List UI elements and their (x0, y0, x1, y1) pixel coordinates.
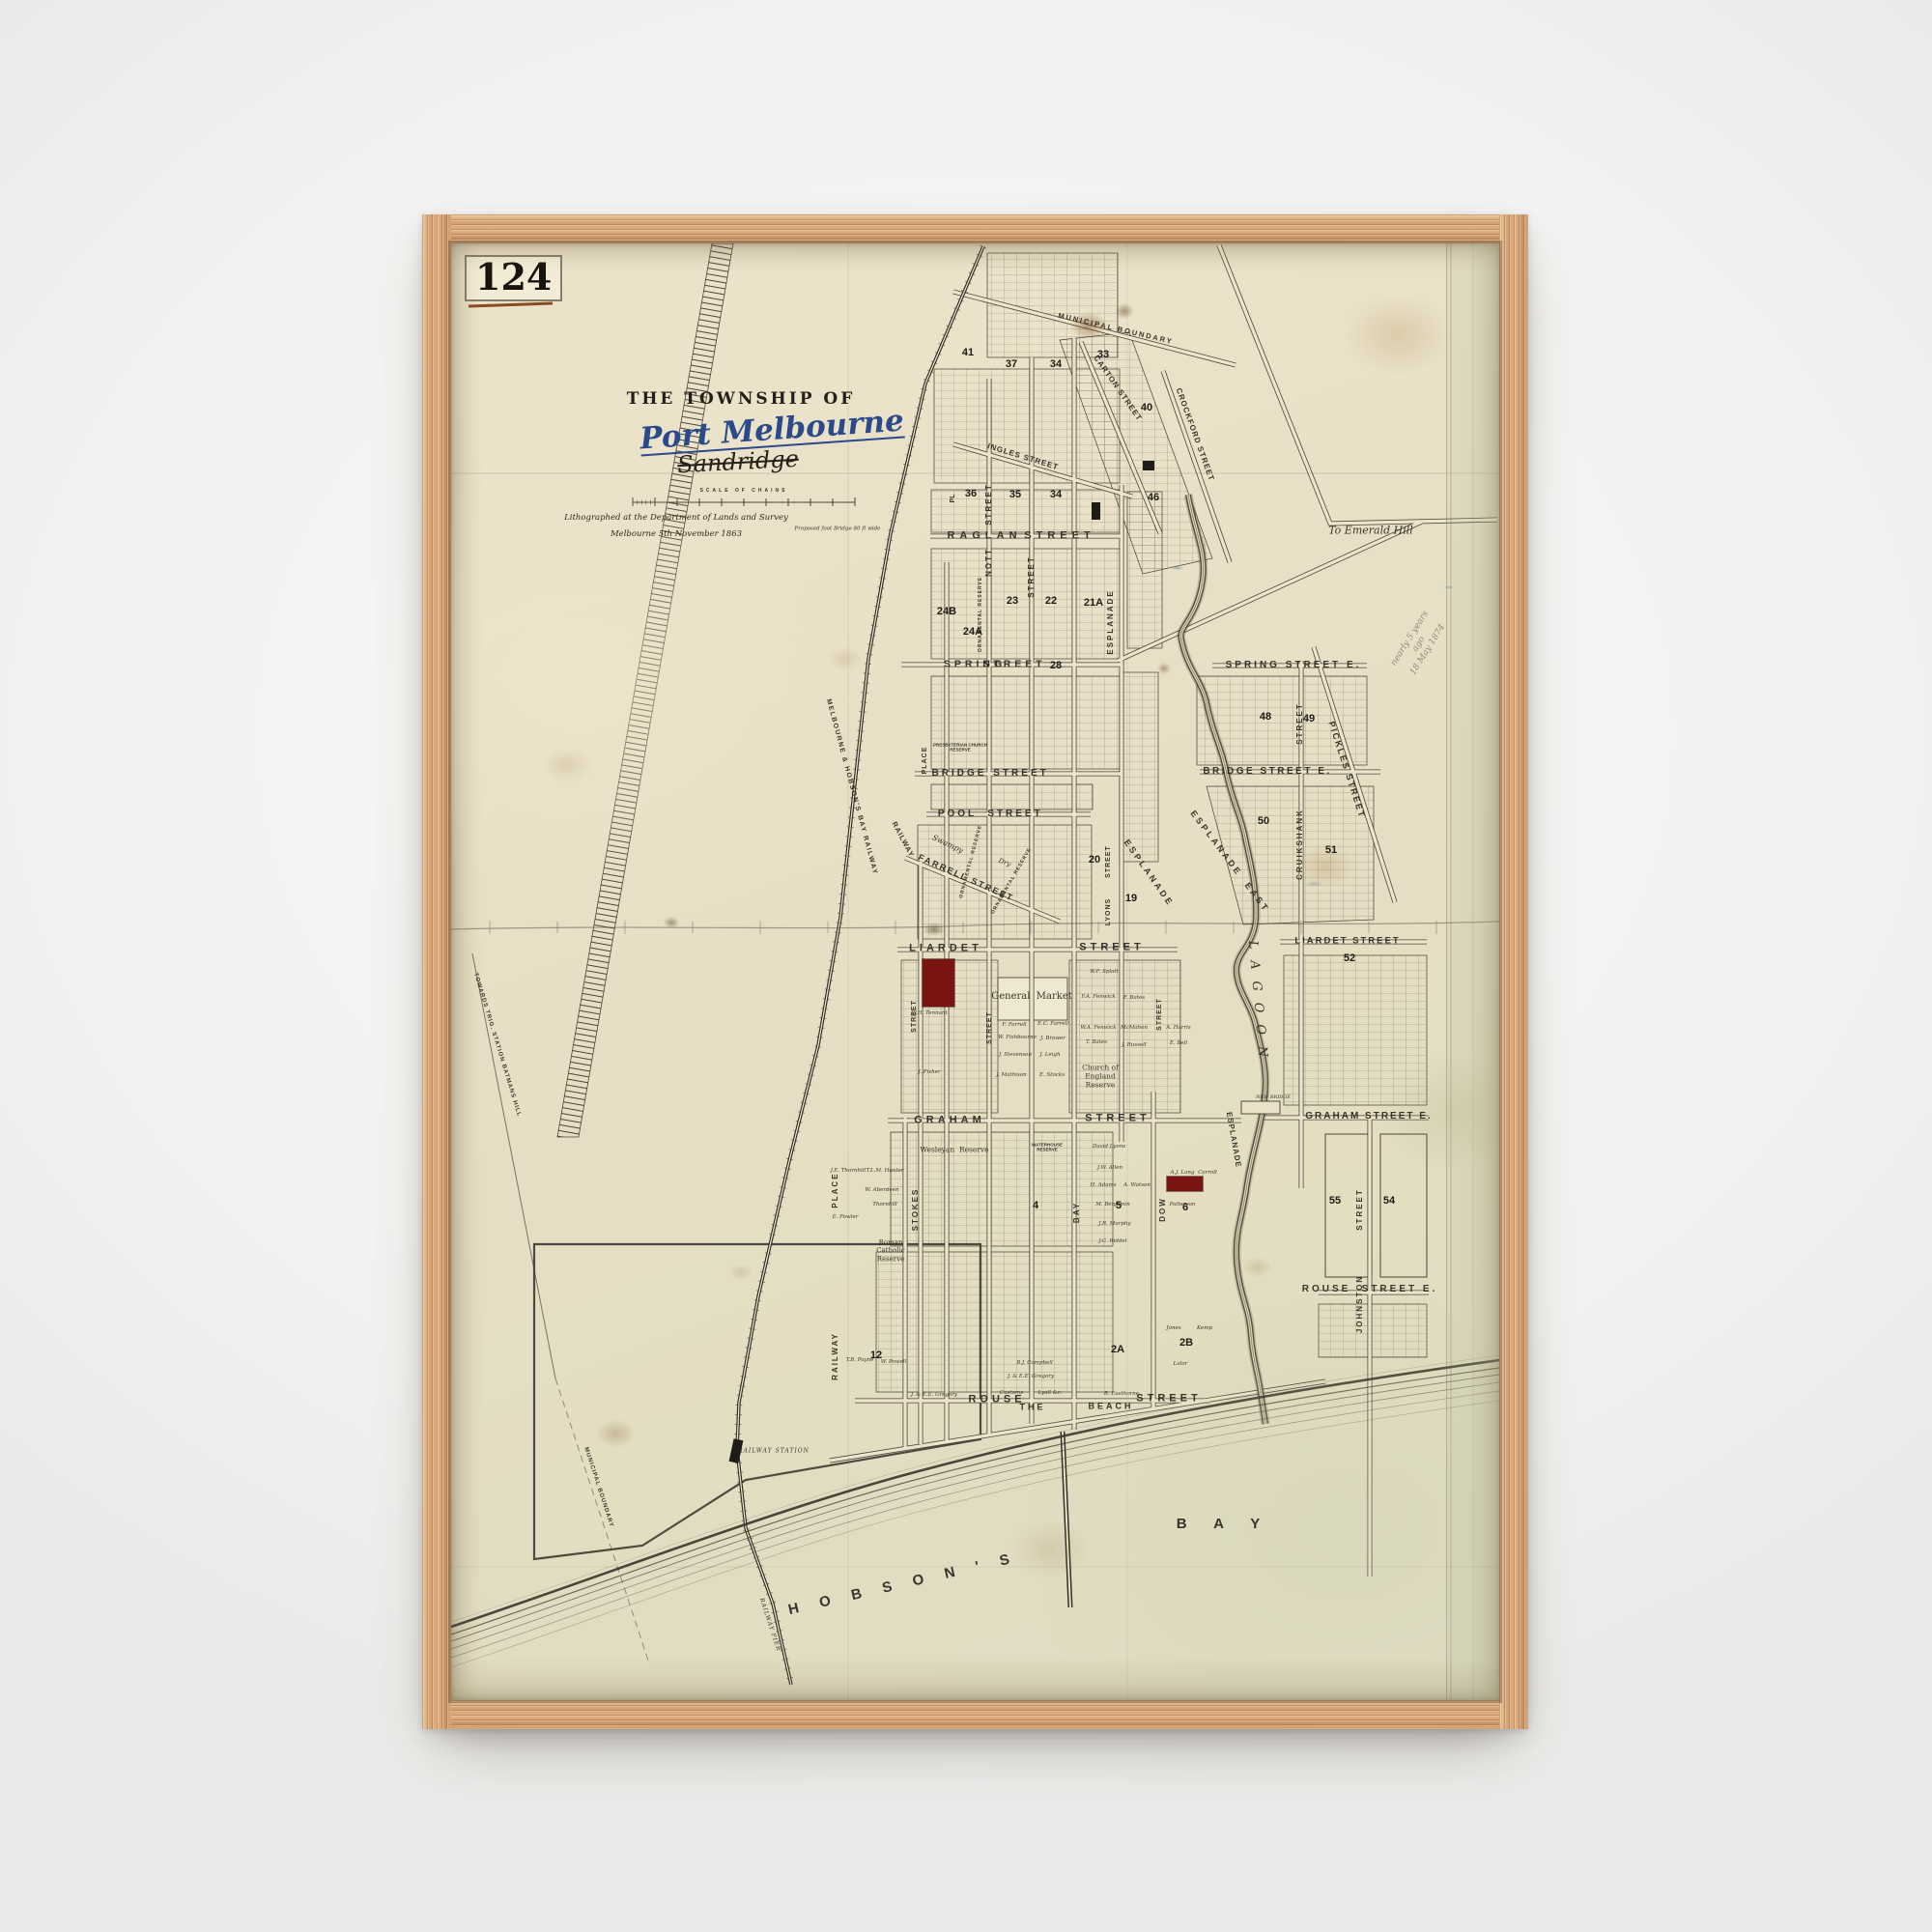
map-label-pl: PL (950, 495, 957, 503)
map-label-street: STREET (986, 1011, 994, 1044)
block-number-33: 33 (1097, 349, 1109, 360)
map-label-nearly-5-years-ago-18-may-1874: nearly 5 years ago 18 May 1874 (1384, 602, 1453, 687)
lot-owner-e-stocks: E. Stocks (1039, 1072, 1065, 1078)
lot-owner-a-j-lang: A.J. Lang (1171, 1170, 1195, 1176)
lot-owner-david-lyons: David Lyons (1093, 1144, 1125, 1150)
map-label-street: STREET (1024, 529, 1094, 542)
map-label-street: STREET (1079, 941, 1144, 953)
lot-owner-j-e-e-gregory: J. & E.E. Gregory (911, 1392, 957, 1398)
map-label-graham-street-e: GRAHAM STREET E. (1305, 1111, 1432, 1122)
lot-owner-a-harris: A. Harris (1166, 1025, 1190, 1031)
map-sheet: RAGLANSTREETSPRINGSTREETSPRING STREET E.… (451, 243, 1499, 1700)
map-label-new-bridge: NEW BRIDGE (1256, 1094, 1291, 1100)
imprint-line-1: Lithographed at the Department of Lands … (564, 513, 788, 523)
map-label-lagoon: LAGOON (1244, 940, 1270, 1069)
lot-owner-thornhill: Thornhill (872, 1202, 897, 1207)
lot-owner-kemp: Kemp (1197, 1325, 1212, 1331)
map-label-general-market: General Market (991, 991, 1072, 1003)
lot-owner-j-stevenson: J. Stevenson (999, 1052, 1032, 1058)
lot-owner-patterson: Patterson (1170, 1202, 1196, 1207)
block-number-28: 28 (1050, 660, 1062, 671)
map-label-esplanade: ESPLANADE (1224, 1111, 1243, 1168)
block-number-34: 34 (1050, 358, 1062, 370)
map-label-street: STREET (987, 809, 1042, 820)
block-number-4: 4 (1033, 1200, 1038, 1211)
block-number-20: 20 (1089, 854, 1100, 866)
block-number-50: 50 (1258, 815, 1269, 827)
map-label-graham: GRAHAM (914, 1114, 985, 1126)
lot-owner-j-brower: J. Brower (1040, 1036, 1065, 1041)
map-label-street: STREET (1156, 998, 1164, 1031)
map-label-liardet: LIARDET (909, 942, 982, 954)
map-label-b-a-y: B A Y (1177, 1516, 1272, 1533)
map-label-stokes: STOKES (911, 1188, 921, 1232)
lot-owner-e-c-farrell: E.C. Farrell (1037, 1021, 1068, 1027)
lot-owner-carroll: Carroll (1198, 1170, 1217, 1176)
lot-owner-f-a-fenwick: F.A. Fenwick (1081, 994, 1115, 1000)
map-label-place: PLACE (922, 747, 929, 775)
map-label-bridge: BRIDGE (932, 768, 987, 780)
block-number-48: 48 (1260, 711, 1271, 723)
map-label-pickles-street: PICKLES STREET (1326, 720, 1368, 819)
map-label-place: PLACE (831, 1172, 840, 1207)
map-label-spring-street-e: SPRING STREET E. (1226, 660, 1362, 671)
red-highlight-block (1167, 1177, 1203, 1191)
lot-owner-e-fowler: E. Fowler (833, 1214, 859, 1220)
block-number-49: 49 (1303, 713, 1315, 724)
map-label-wesleyan-reserve: Wesleyan Reserve (920, 1146, 988, 1154)
map-label-the: THE (1020, 1403, 1046, 1413)
lot-owner-w-aberdeen: W. Aberdeen (865, 1187, 898, 1193)
sheet-number-badge: 124 (465, 255, 562, 301)
lot-owner-customs: Customs (1000, 1390, 1023, 1396)
map-label-ornamental-reserve: ORNAMENTAL RESERVE (990, 847, 1033, 916)
map-title: THE TOWNSHIP OF (627, 389, 856, 409)
map-label-municipal-boundary: MUNICIPAL BOUNDARY (582, 1447, 614, 1529)
lot-owner-j-leigh: J. Leigh (1039, 1052, 1060, 1058)
map-label-proposed-foot-bridge-80-ft-wide: Proposed foot Bridge 80 ft wide (795, 526, 881, 533)
map-label-waterhouse-reserve: WATERHOUSE RESERVE (1032, 1143, 1063, 1153)
lot-owner-b-easthorne: B. Easthorne (1104, 1391, 1139, 1397)
map-label-esplanade: ESPLANADE (1106, 589, 1116, 654)
map-label-bay: BAY (1072, 1202, 1082, 1223)
lot-owner-f-bates: F. Bates (1123, 995, 1145, 1001)
lot-owner-j-russell: J. Russell (1122, 1042, 1146, 1048)
lot-owner-w-powell: W. Powell (881, 1359, 906, 1365)
lot-owner-j-mathison: J. Mathison (996, 1072, 1026, 1078)
red-highlight-block (923, 959, 954, 1007)
block-number-52: 52 (1344, 952, 1355, 964)
map-label-cruikshank: CRUIKSHANK (1295, 809, 1305, 880)
map-label-melbourne-hobson-s-bay-railway: MELBOURNE & HOBSON'S BAY RAILWAY (824, 698, 879, 876)
lot-owner-jones: Jones (1166, 1325, 1180, 1331)
block-number-37: 37 (1006, 358, 1017, 370)
block-number-24b: 24B (937, 606, 956, 617)
block-number-51: 51 (1325, 844, 1337, 856)
map-label-street: STREET (911, 1000, 919, 1033)
map-label-street: STREET (993, 768, 1048, 780)
lot-owner-w-h-tennant: W.H. Tennant (911, 1010, 947, 1016)
map-label-ingles-street: INGLES STREET (986, 441, 1060, 472)
map-label-street: STREET (1355, 1188, 1365, 1231)
map-label-ornamental-reserve: ORNAMENTAL RESERVE (978, 577, 983, 652)
lot-owner-j-e-thornhill: J.E. Thornhill (831, 1168, 867, 1174)
block-number-55: 55 (1329, 1195, 1341, 1207)
lot-owner-h-adams: H. Adams (1090, 1182, 1116, 1188)
map-label-dow: DOW (1158, 1197, 1168, 1222)
lot-owner-a-watson: A. Watson (1123, 1182, 1151, 1188)
map-label-crockford-street: CROCKFORD STREET (1174, 387, 1216, 483)
frame-bottom-rail (422, 1700, 1528, 1729)
lot-owner-t-l-m-hunter: T.L.M. Hunter (866, 1168, 903, 1174)
lot-owner-j-r-murphy: J.R. Murphy (1098, 1221, 1130, 1227)
lot-owner-lalor: Lalor (1174, 1361, 1188, 1367)
block-number-34: 34 (1050, 489, 1062, 500)
lot-owner-w-a-fenwick: W.A. Fenwick (1080, 1025, 1116, 1031)
block-number-54: 54 (1383, 1195, 1395, 1207)
frame-right-rail (1499, 214, 1528, 1729)
lot-owner-w-f-splatt: W.F. Splatt (1090, 969, 1119, 975)
map-label-roman-catholic-reserve: Roman Catholic Reserve (876, 1238, 904, 1263)
wall-background: RAGLANSTREETSPRINGSTREETSPRING STREET E.… (0, 0, 1932, 1932)
block-number-40: 40 (1141, 402, 1152, 413)
block-number-19: 19 (1125, 893, 1137, 904)
frame-top-rail (422, 214, 1528, 243)
map-label-raglan: RAGLAN (947, 529, 1021, 542)
picture-frame: RAGLANSTREETSPRINGSTREETSPRING STREET E.… (422, 214, 1528, 1729)
map-label-railway: RAILWAY (891, 820, 917, 859)
lot-owner-j-c-riddel: J.C. Riddel (1099, 1238, 1127, 1244)
block-number-23: 23 (1007, 595, 1018, 607)
block-number-46: 46 (1148, 492, 1159, 503)
map-label-pool: POOL (938, 809, 977, 820)
lot-owner-t-b-payne: T.B. Payne (846, 1357, 874, 1363)
map-label-street: STREET (1027, 555, 1037, 598)
block-number-22: 22 (1045, 595, 1057, 607)
map-label-municipal-boundary: MUNICIPAL BOUNDARY (1057, 311, 1174, 346)
lot-owner-mcmahon: McMahon (1121, 1025, 1148, 1031)
lot-owner-j-e-e-gregory: J. & E.E. Gregory (1008, 1374, 1054, 1379)
map-label-carton-street: CARTON STREET (1092, 354, 1144, 423)
block-number-21a: 21A (1084, 597, 1103, 609)
map-label-street: STREET (1105, 845, 1113, 878)
map-label-dry: Dry (997, 857, 1011, 868)
lot-owner-j-w-allen: J.W. Allen (1097, 1165, 1122, 1171)
lot-owner-e-bell: E. Bell (1170, 1040, 1187, 1046)
map-label-street: STREET (1136, 1392, 1201, 1405)
map-label-railway-pier: RAILWAY PIER (758, 1597, 782, 1652)
lot-owner-t-bates: T. Bates (1086, 1039, 1107, 1045)
map-label-nott: NOTT (984, 548, 994, 577)
map-label-railway-station: RAILWAY STATION (738, 1447, 810, 1454)
map-label-liardet-street: LIARDET STREET (1294, 935, 1400, 946)
black-building-block (1092, 502, 1100, 520)
map-label-street: STREET (1085, 1112, 1150, 1124)
map-label-lyons: LYONS (1105, 898, 1113, 925)
map-label-street: STREET (982, 659, 1045, 671)
block-number-2b: 2B (1179, 1337, 1193, 1349)
lot-owner-m-benjamin: M. Benjamin (1095, 1202, 1129, 1207)
lot-owner-lyall-c: Lyall &c. (1038, 1390, 1063, 1396)
block-number-35: 35 (1009, 489, 1021, 500)
map-label-h-o-b-s-o-n-s: H O B S O N ' S (786, 1549, 1019, 1619)
map-labels-layer: RAGLANSTREETSPRINGSTREETSPRING STREET E.… (451, 243, 1499, 1700)
lot-owner-b-j-campbell: B.J. Campbell (1016, 1360, 1053, 1366)
sheet-number: 124 (475, 255, 552, 298)
block-number-36: 36 (965, 488, 977, 499)
lot-owner-f-farrell: F. Farrell (1002, 1022, 1026, 1028)
map-label-bridge-street-e: BRIDGE STREET E. (1203, 766, 1331, 778)
map-label-towards-trig-station-batmans-hill: TOWARDS TRIG. STATION BATMANS HILL (471, 973, 522, 1119)
map-label-church-of-england-reserve: Church of England Reserve (1082, 1064, 1119, 1090)
black-building-block (1143, 461, 1154, 470)
lot-owner-w-fishbourne: W. Fishbourne (998, 1035, 1037, 1040)
map-label-street: STREET (984, 483, 994, 526)
map-label-to-emerald-hill: To Emerald Hill (1328, 524, 1413, 536)
imprint-line-2: Melbourne 5th November 1863 (611, 529, 742, 539)
map-label-beach: BEACH (1088, 1402, 1133, 1412)
map-label-presbyterian-church-reserve: PRESBYTERIAN CHURCH RESERVE (933, 743, 987, 753)
map-label-railway: RAILWAY (831, 1332, 840, 1380)
frame-left-rail (422, 214, 451, 1729)
map-label-swampy: Swampy (930, 833, 964, 855)
map-label-johnston: JOHNSTON (1355, 1275, 1365, 1333)
map-label-street-e: STREET E. (1362, 1284, 1438, 1295)
lot-owner-j-fisher: J. Fisher (918, 1069, 940, 1075)
block-number-41: 41 (962, 347, 974, 358)
block-number-24a: 24A (963, 626, 982, 638)
block-number-2a: 2A (1111, 1344, 1124, 1355)
scale-caption: SCALE OF CHAINS (700, 488, 788, 494)
map-label-rouse: ROUSE (1302, 1284, 1351, 1295)
